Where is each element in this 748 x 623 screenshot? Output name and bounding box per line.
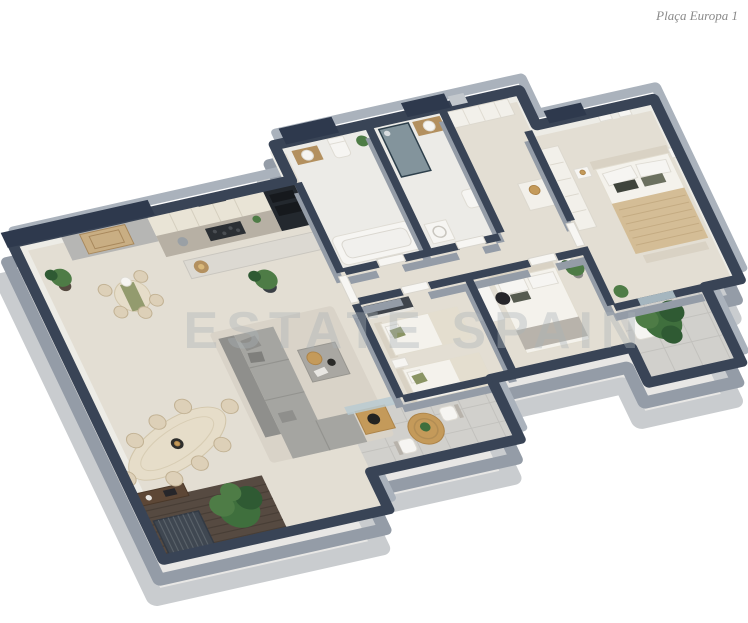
floorplan-page: ESTATE SPAIN Plaça Europa 1	[0, 0, 748, 623]
watermark: ESTATE SPAIN	[184, 302, 647, 360]
floorplan-3d-render: ESTATE SPAIN Plaça Europa 1	[0, 0, 748, 623]
page-title: Plaça Europa 1	[655, 8, 738, 23]
